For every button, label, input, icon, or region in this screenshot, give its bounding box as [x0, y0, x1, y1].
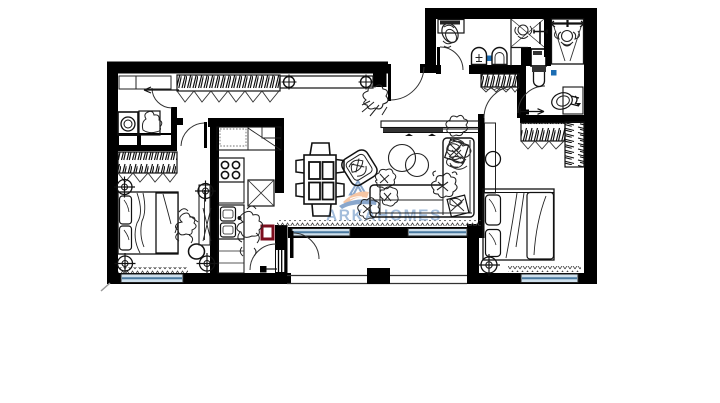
svg-text:ARKAHOMES: ARKAHOMES — [326, 208, 442, 225]
